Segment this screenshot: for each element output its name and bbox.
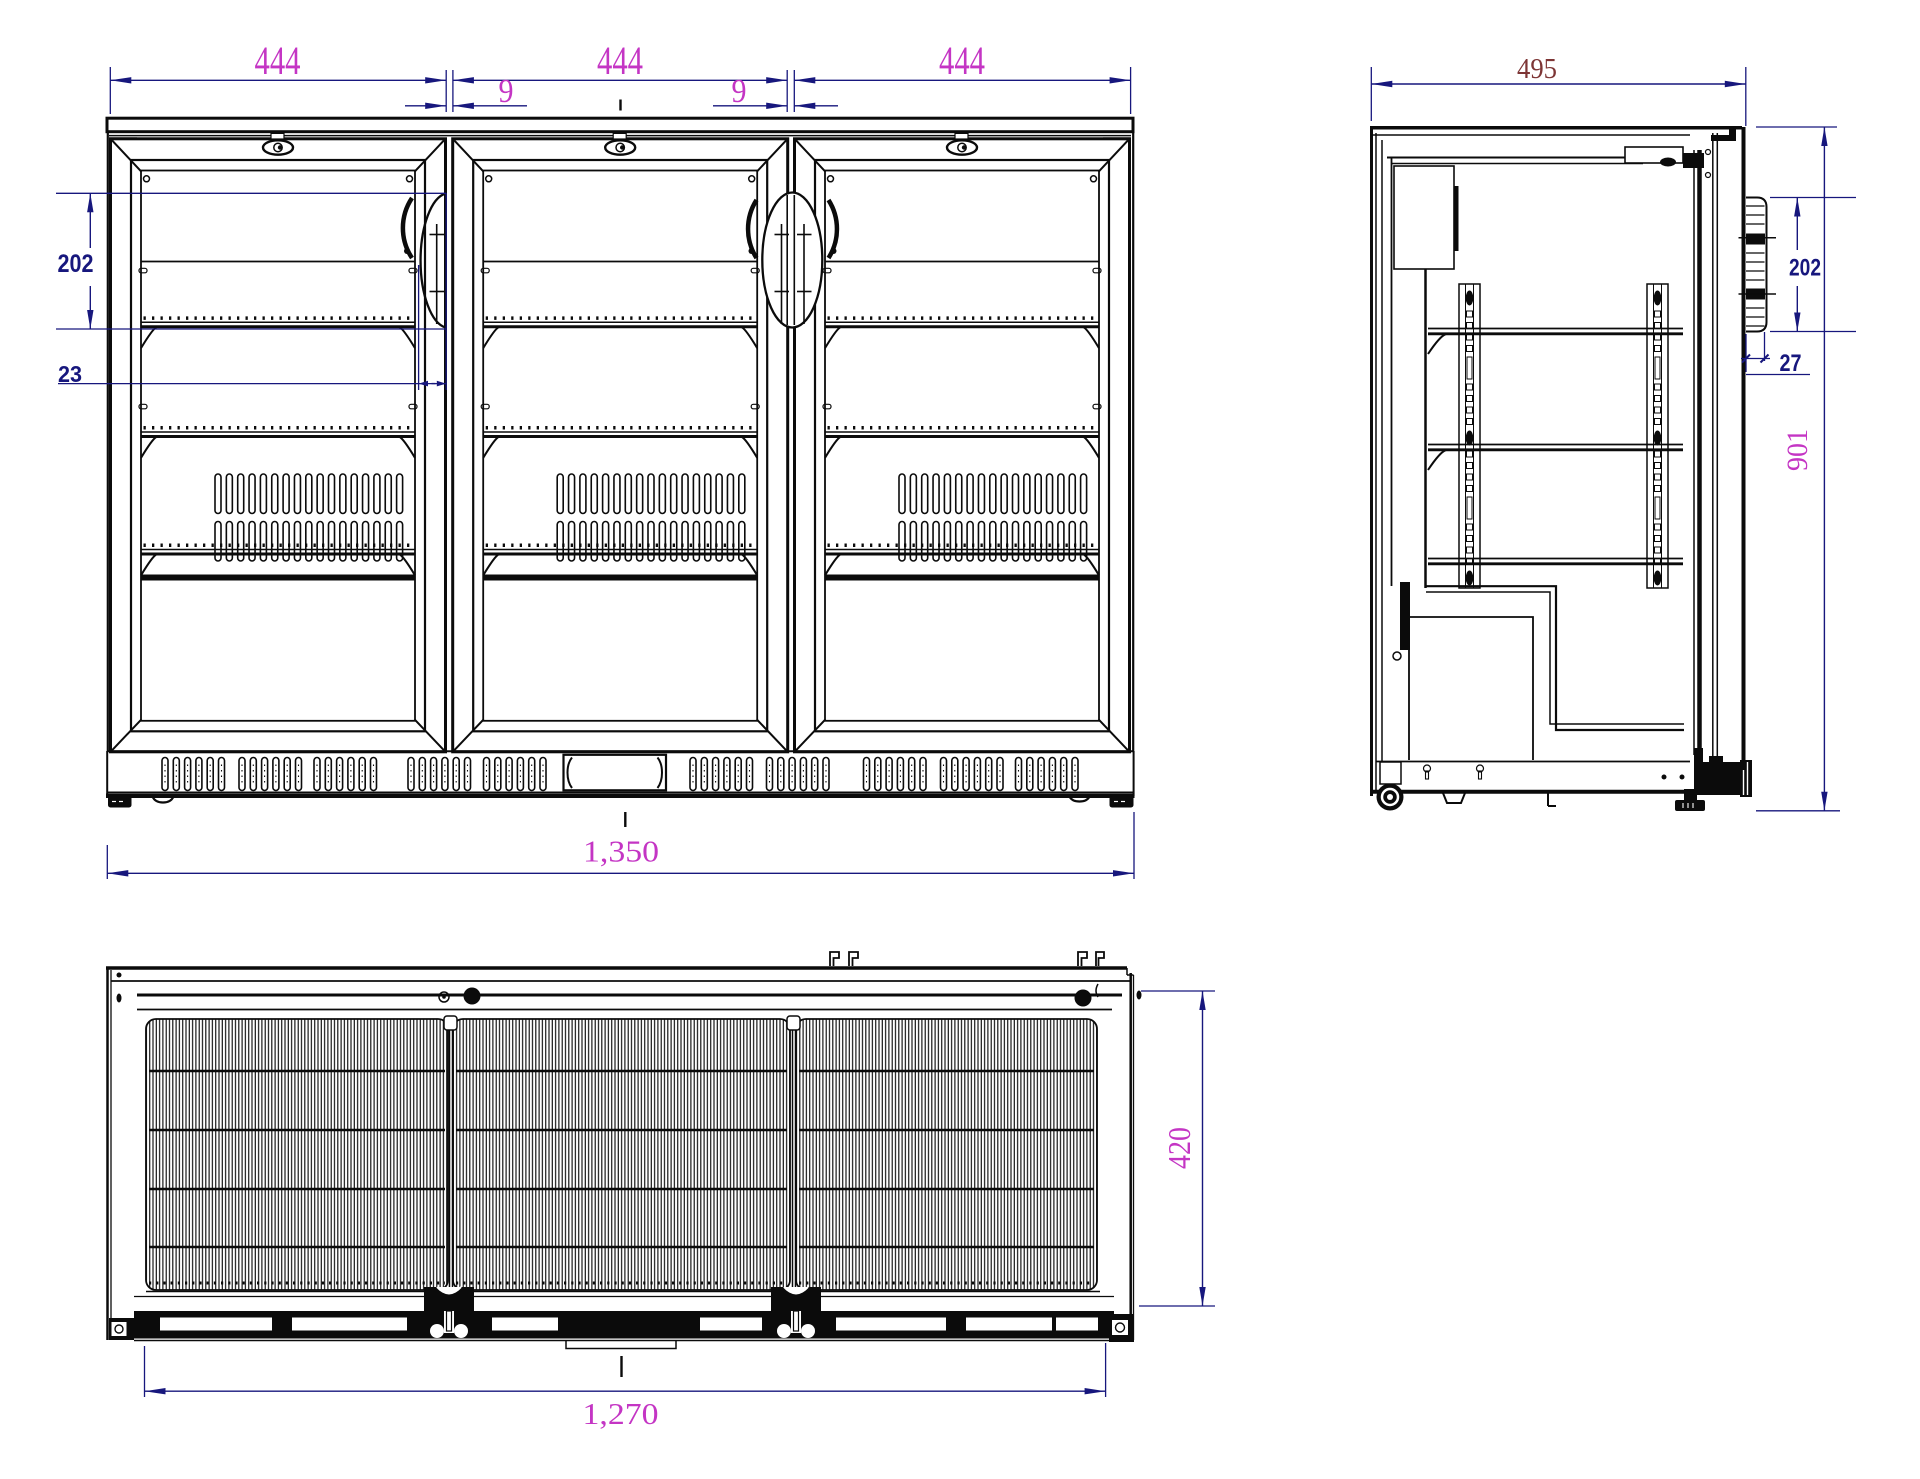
svg-text:9: 9 — [499, 73, 514, 110]
svg-text:901: 901 — [1781, 429, 1814, 471]
svg-text:495: 495 — [1517, 54, 1557, 85]
svg-text:420: 420 — [1161, 1127, 1197, 1169]
svg-text:202: 202 — [1789, 255, 1821, 282]
svg-text:27: 27 — [1780, 350, 1802, 377]
svg-text:1,270: 1,270 — [583, 1396, 659, 1431]
svg-text:444: 444 — [255, 38, 301, 83]
svg-text:444: 444 — [939, 38, 985, 83]
svg-text:1,350: 1,350 — [583, 834, 659, 869]
svg-text:9: 9 — [732, 73, 747, 110]
svg-text:444: 444 — [597, 38, 643, 83]
svg-text:23: 23 — [58, 361, 82, 387]
svg-text:202: 202 — [58, 250, 94, 278]
